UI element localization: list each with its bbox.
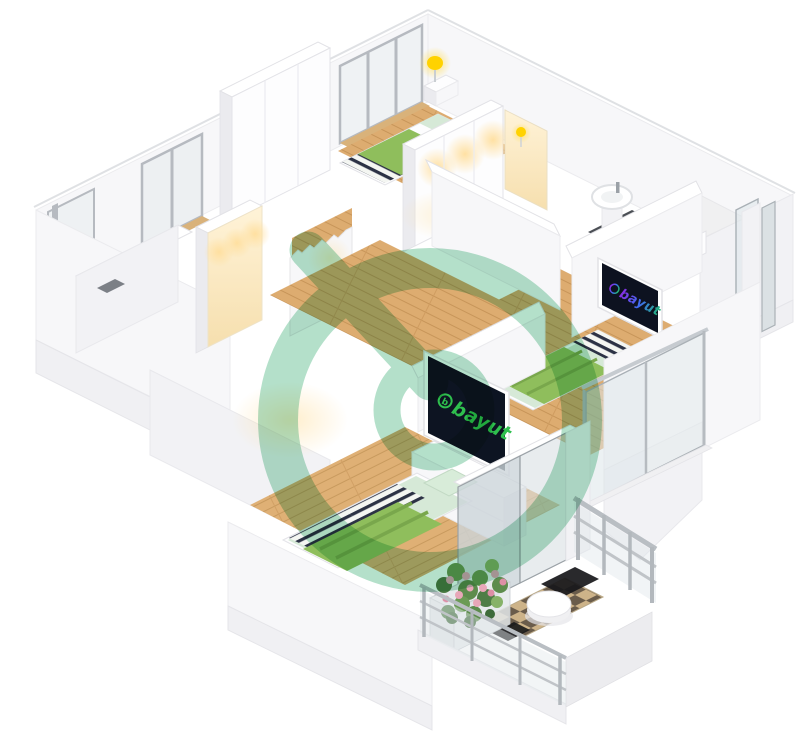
- floor-plan-rendering: bayut b bayut: [0, 0, 800, 746]
- wardrobe-lit-left: [196, 200, 270, 353]
- lamp-shade-yellow: [427, 56, 443, 70]
- balcony-table: [525, 591, 573, 626]
- table-lamp-2: [516, 127, 526, 137]
- wardrobe-top-left: [220, 42, 330, 225]
- tap-1: [616, 182, 620, 193]
